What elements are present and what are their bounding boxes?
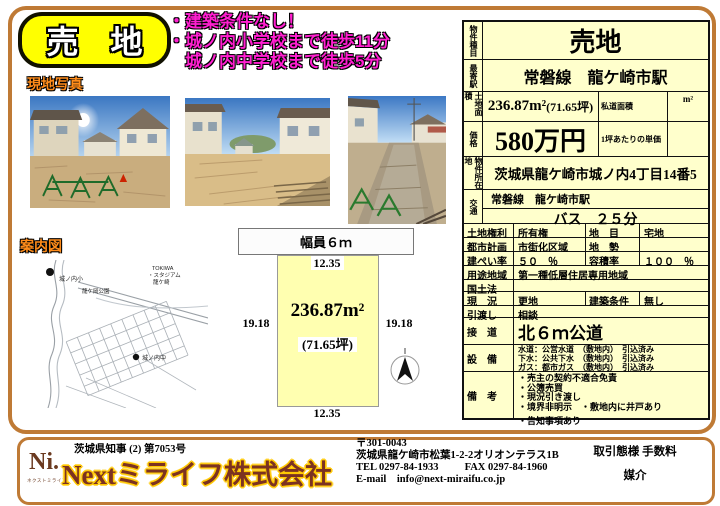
land-area-tsubo: (71.65坪) [546,98,593,115]
plot-area-tsubo: (71.65坪) [255,334,400,353]
real-estate-flyer: 売 地 ・建築条件なし！ ・城ノ内小学校まで徒歩11分 城ノ内中学校まで徒歩5分… [0,0,720,506]
remarks-value: ・売主の契約不適合免責 ・公簿売買 ・現況引き渡し ・境界非明示 ・敷地内に井戸… [514,372,708,418]
company-address: 茨城県龍ケ崎市松葉1-2-2オリオンテラス1B [356,450,559,462]
utility-gas: ガス：都市ガス （敷地内） 引込済み [518,363,708,372]
cell-label: 容積率 [586,252,640,265]
map-label-stadium-1: TOKIWA [152,266,174,272]
dealing-type: 取引態様 手数料 媒介 [585,443,685,483]
row-city-plan: 都市計画 市街化区域 地 勢 [464,238,708,252]
cell-value: 市街化区域 [514,238,586,251]
company-logo: Ni. [29,450,59,474]
cell-label: 現 況 [464,292,514,305]
dealing-value: 媒介 [585,467,685,483]
cell-label: 接 道 [464,318,514,344]
area-map-image: 城ノ内小 龍ケ岡公園 TOKIWA ・スタジアム 龍ケ崎 城ノ内中 [26,260,208,408]
plot-dim-bottom: 12.35 [303,406,351,421]
phone-number: TEL 0297-84-1933 [356,462,439,474]
site-photo-3-image [348,96,446,224]
utility-water: 水道：公営水道 （敷地内） 引込済み [518,345,708,354]
fax-number: FAX 0297-84-1960 [465,462,548,474]
plot-dim-top: 12.35 [303,256,351,271]
unit-price-label: 1坪あたりの単価 [598,122,668,156]
row-handover: 引渡し 相談 [464,306,708,318]
cell-label: 土地権利 [464,224,514,237]
row-access: 交通 常磐線 龍ケ崎市駅 バス ２５分 [464,190,708,224]
map-marker-elementary [46,268,54,276]
email-address: E-mail info@next-miraifu.co.jp [356,474,559,486]
row-label: 交通 [464,190,483,223]
site-photo-1 [30,96,170,208]
cell-value: 所有権 [514,224,586,237]
north-compass-icon [388,348,422,388]
road-width-band: 幅員６ｍ [238,228,414,255]
row-national-land: 国土法 [464,280,708,292]
cell-value: 更地 [514,292,586,305]
land-area-sqm: 236.87m² [488,98,546,115]
map-label-park: 龍ケ岡公園 [82,287,110,295]
highlight-line-3: 城ノ内中学校まで徒歩5分 [168,52,390,72]
row-label: 価格 [464,122,483,156]
unit-price-value [668,122,708,156]
map-marker-jhs [133,354,139,360]
plot-area-value: 236.87m² [255,300,400,322]
site-photo-2-image [185,98,330,206]
utility-sewer: 下水：公共下水 （敷地内） 引込済み [518,354,708,363]
row-label: 物件所在地 [464,157,483,189]
cell-label: 地 目 [586,224,640,237]
property-type-value: 売地 [483,22,708,59]
row-zoning: 用途地域 第一種低層住居専用地域 [464,266,708,280]
road-width-label: 幅員６ｍ [300,232,352,251]
cell-value: 第一種低層住居専用地域 [514,266,708,279]
row-label: 最寄駅 [464,60,483,91]
row-station: 最寄駅 常磐線 龍ケ崎市駅 [464,60,708,92]
dealing-label: 取引態様 手数料 [585,443,685,459]
access-line-value: 常磐線 龍ケ崎市駅 [483,190,708,209]
cell-value [640,238,708,251]
cell-label: 用途地域 [464,266,514,279]
row-property-type: 物件種目 売地 [464,22,708,60]
price-value: 580万円 [483,122,598,156]
row-land-right: 土地権利 所有権 地 目 宅地 [464,224,708,238]
cell-label: 地 勢 [586,238,640,251]
map-label-stadium-3: 龍ケ崎 [153,278,170,286]
site-photo-3 [348,96,446,224]
row-bcr-far: 建ぺい率 ５０ ％ 容積率 １００ ％ [464,252,708,266]
cell-label: 建築条件 [586,292,640,305]
cell-label: 建ぺい率 [464,252,514,265]
company-name: Nextミライフ株式会社 [62,453,332,492]
map-label-jhs: 城ノ内中 [142,354,166,362]
map-section-label: 案内図 [20,236,62,256]
postal-code: 〒301-0043 [356,438,559,450]
row-status: 現 況 更地 建築条件 無し [464,292,708,306]
utilities-value: 水道：公営水道 （敷地内） 引込済み 下水：公共下水 （敷地内） 引込済み ガス… [514,345,708,371]
remark-line: ・告知事項あり [518,417,708,427]
map-label-stadium-2: ・スタジアム [148,271,181,279]
property-table: 物件種目 売地 最寄駅 常磐線 龍ケ崎市駅 土地面積 236.87m²(71.6… [462,20,710,420]
highlight-notes: ・建築条件なし！ ・城ノ内小学校まで徒歩11分 城ノ内中学校まで徒歩5分 [168,12,390,72]
cell-label: 都市計画 [464,238,514,251]
row-road-contact: 接 道 北６ｍ公道 [464,318,708,345]
area-map: 城ノ内小 龍ケ岡公園 TOKIWA ・スタジアム 龍ケ崎 城ノ内中 [26,260,208,408]
row-land-area: 土地面積 236.87m²(71.65坪) 私道面積 m² [464,92,708,122]
road-contact-value: 北６ｍ公道 [514,318,708,344]
cell-label: 引渡し [464,306,514,317]
row-label: 物件種目 [464,22,483,59]
remark-line: ・境界非明示 ・敷地内に井戸あり [518,403,708,413]
cell-value: 無し [640,292,708,305]
photos-section-label: 現地写真 [27,74,83,94]
company-logo-subtext: ネクストミライフ [27,478,67,484]
site-photo-1-image [30,96,170,208]
map-label-elementary: 城ノ内小 [59,275,83,283]
cell-value: 相談 [514,306,708,317]
company-contact: 〒301-0043 茨城県龍ケ崎市松葉1-2-2オリオンテラス1B TEL 02… [356,438,559,486]
highlight-line-1: ・建築条件なし！ [168,12,390,32]
row-remarks: 備 考 ・売主の契約不適合免責 ・公簿売買 ・現況引き渡し ・境界非明示 ・敷地… [464,372,708,418]
cell-value: ５０ ％ [514,252,586,265]
row-label: 土地面積 [464,92,483,121]
land-area-value: 236.87m²(71.65坪) [483,92,598,121]
location-value: 茨城県龍ケ崎市城ノ内4丁目14番5 [483,157,708,189]
cell-label: 国土法 [464,280,514,291]
cell-value: １００ ％ [640,252,708,265]
plot-rectangle [277,255,379,407]
private-road-unit: m² [668,92,708,121]
site-photo-2 [185,98,330,206]
cell-value [514,280,708,291]
row-utilities: 設 備 水道：公営水道 （敷地内） 引込済み 下水：公共下水 （敷地内） 引込済… [464,345,708,372]
sale-banner: 売 地 [18,12,171,68]
station-value: 常磐線 龍ケ崎市駅 [483,60,708,91]
highlight-line-2: ・城ノ内小学校まで徒歩11分 [168,32,390,52]
row-location: 物件所在地 茨城県龍ケ崎市城ノ内4丁目14番5 [464,157,708,190]
sale-banner-text: 売 地 [46,17,142,63]
row-price: 価格 580万円 1坪あたりの単価 [464,122,708,157]
cell-label: 設 備 [464,345,514,371]
cell-value: 宅地 [640,224,708,237]
private-road-label: 私道面積 [598,92,668,121]
cell-label: 備 考 [464,372,514,418]
